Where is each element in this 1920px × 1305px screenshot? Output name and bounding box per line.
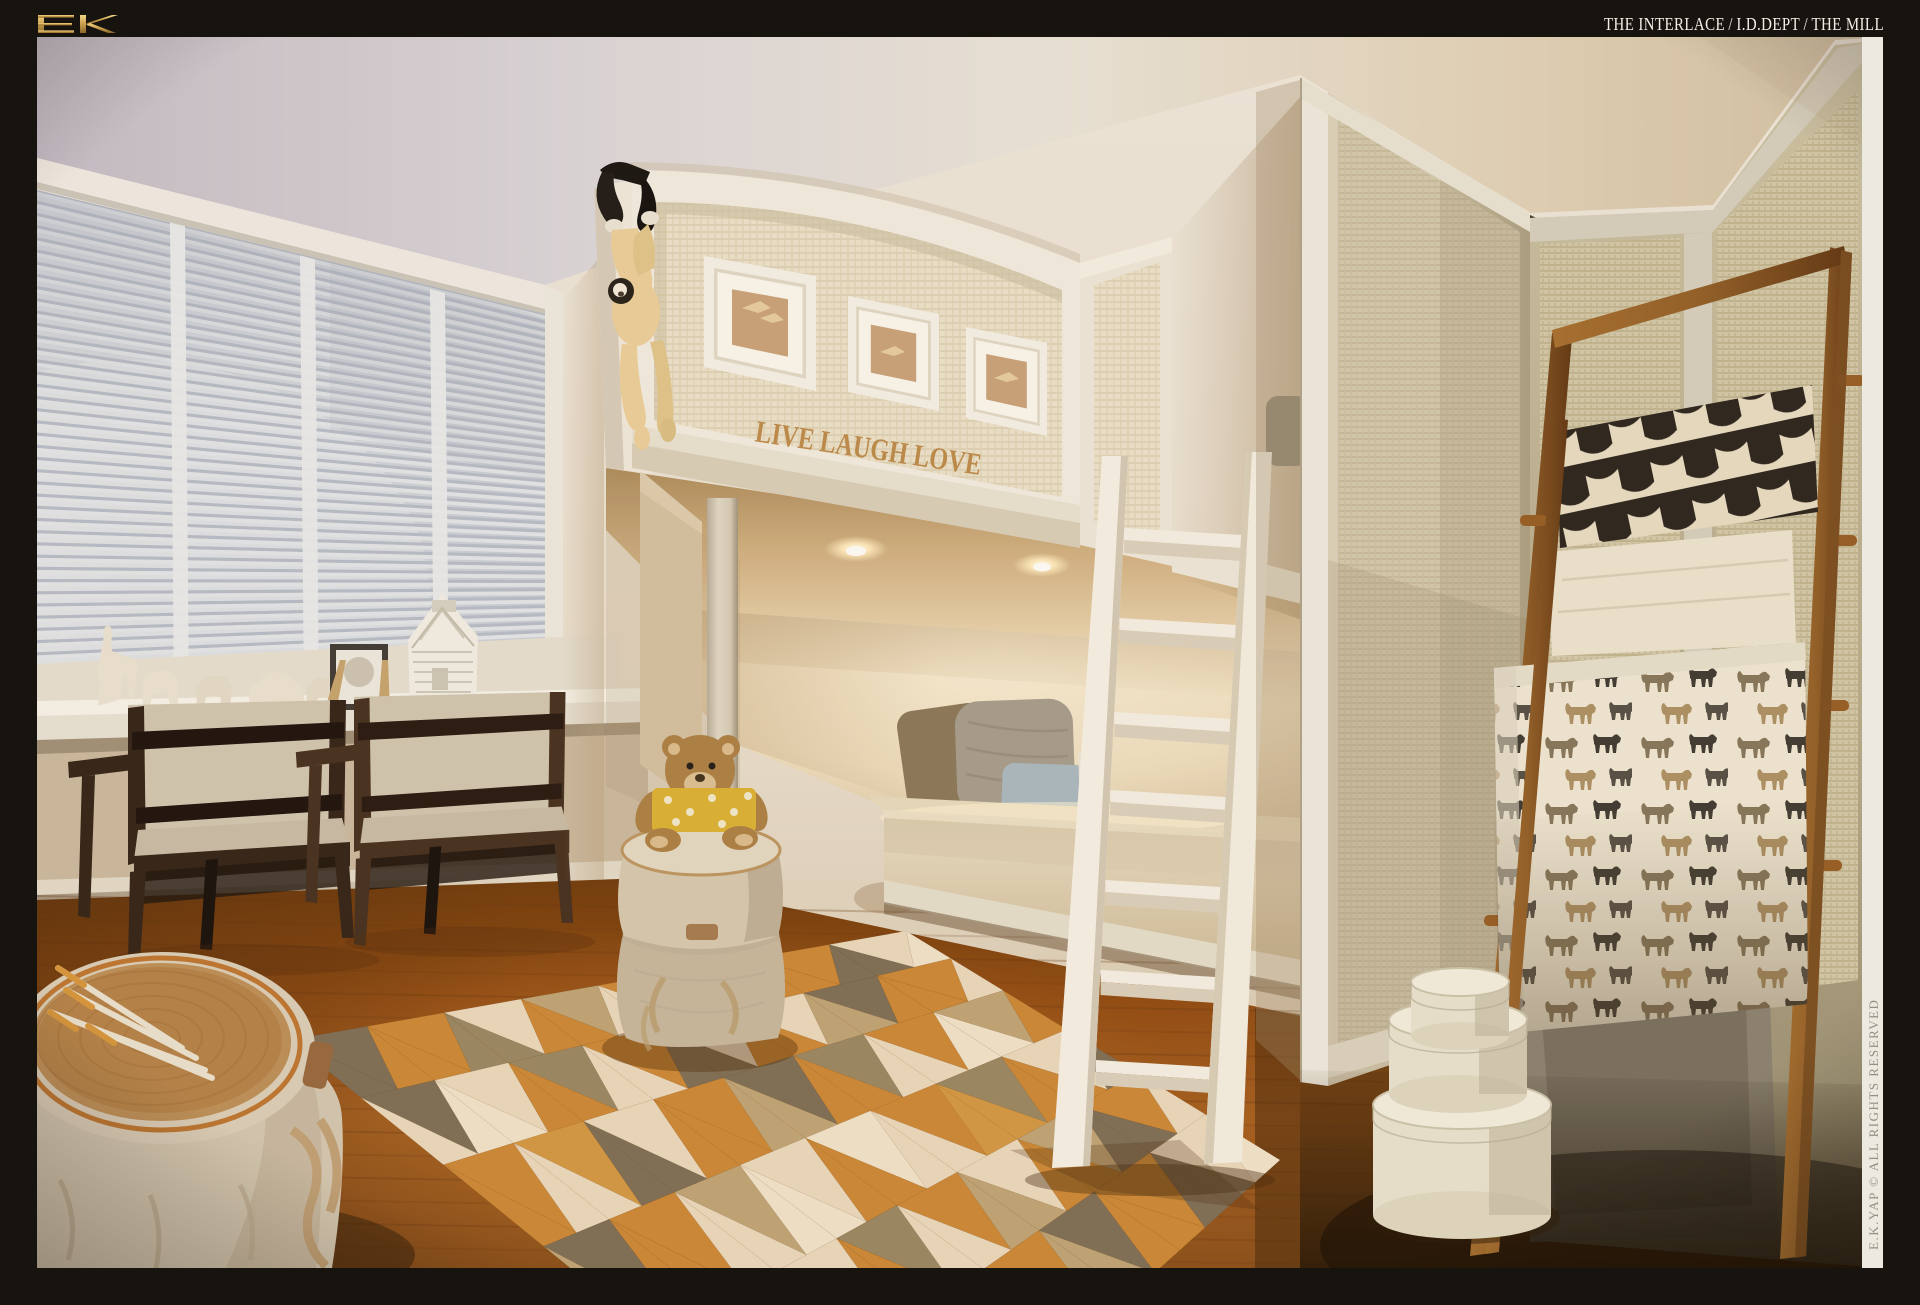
svg-text:E.K.YAP © ALL RIGHTS RESERVED: E.K.YAP © ALL RIGHTS RESERVED bbox=[1866, 999, 1881, 1250]
svg-text:THE INTERLACE / I.D.DEPT / THE: THE INTERLACE / I.D.DEPT / THE MILL bbox=[1604, 14, 1884, 34]
